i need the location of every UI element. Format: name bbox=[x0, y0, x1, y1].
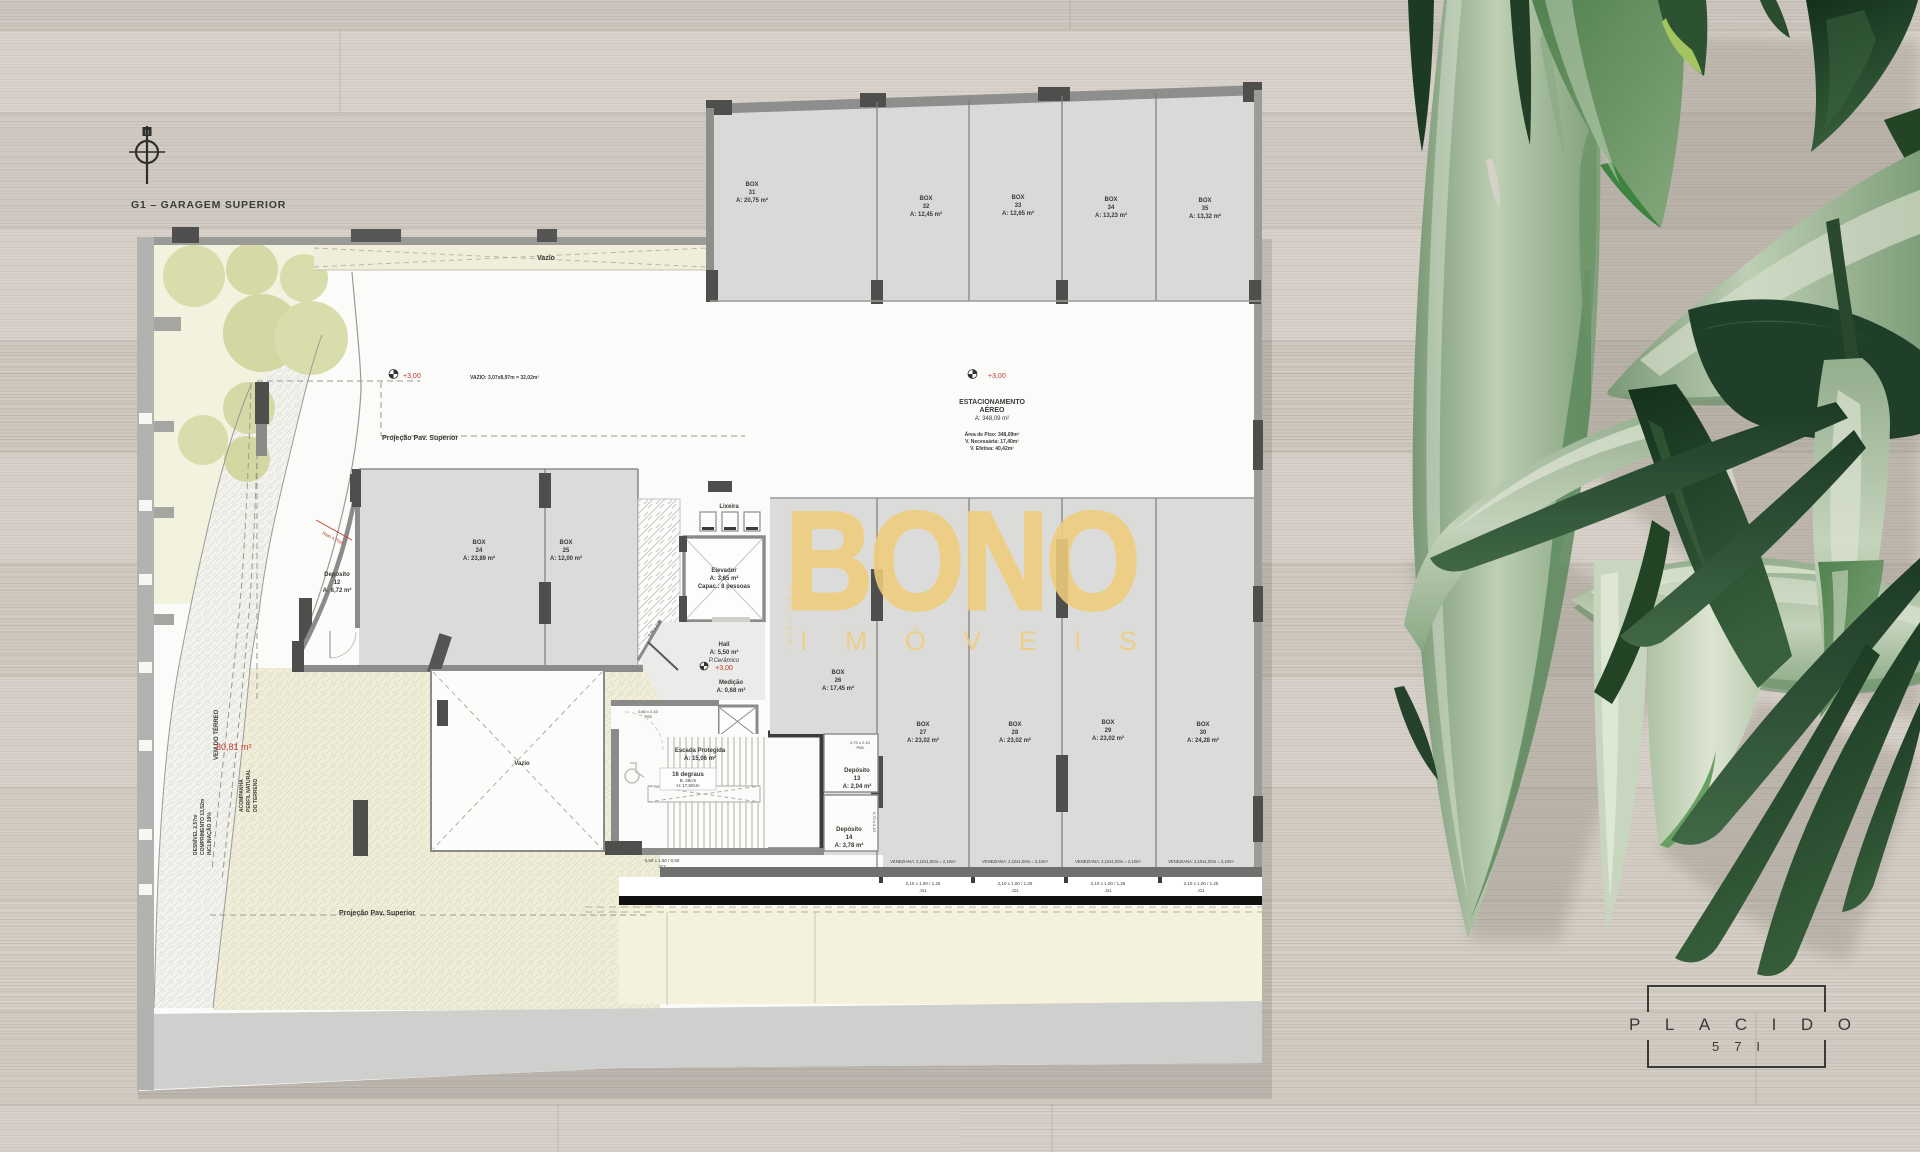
svg-text:A: 13,23 m²: A: 13,23 m² bbox=[1095, 212, 1127, 219]
svg-text:BOX: BOX bbox=[1198, 198, 1211, 204]
svg-text:VAZIO: 3,07x8,97m = 32,02m²: VAZIO: 3,07x8,97m = 32,02m² bbox=[470, 375, 539, 381]
svg-text:A: 0,68 m²: A: 0,68 m² bbox=[717, 687, 746, 694]
svg-text:BONO: BONO bbox=[785, 482, 1137, 639]
svg-text:+3,00: +3,00 bbox=[988, 373, 1006, 380]
svg-text:Depósito: Depósito bbox=[844, 768, 870, 774]
svg-text:2,10 x 1,00 / 1,25: 2,10 x 1,00 / 1,25 bbox=[906, 881, 941, 886]
svg-text:80,81 m²: 80,81 m² bbox=[216, 742, 252, 752]
svg-text:A: 12,65 m²: A: 12,65 m² bbox=[1002, 210, 1034, 217]
svg-text:DESNÍVEL 2,57m: DESNÍVEL 2,57m bbox=[191, 814, 199, 855]
svg-text:BOX: BOX bbox=[1104, 197, 1117, 203]
svg-text:+3,00: +3,00 bbox=[403, 373, 421, 380]
svg-text:28: 28 bbox=[1012, 730, 1019, 736]
svg-text:Elevador: Elevador bbox=[711, 568, 737, 574]
svg-text:DO TERRENO: DO TERRENO bbox=[253, 779, 259, 812]
svg-text:BOX: BOX bbox=[919, 196, 932, 202]
svg-text:29: 29 bbox=[1105, 728, 1112, 734]
svg-text:PERFIL NATURAL: PERFIL NATURAL bbox=[246, 769, 252, 812]
svg-text:Vazio: Vazio bbox=[514, 761, 530, 767]
svg-text:IMOBILIÁRIA: IMOBILIÁRIA bbox=[785, 582, 794, 650]
svg-text:BOX: BOX bbox=[745, 182, 758, 188]
svg-text:24: 24 bbox=[476, 548, 483, 554]
svg-text:34: 34 bbox=[1108, 205, 1115, 211]
svg-text:35: 35 bbox=[1202, 206, 1209, 212]
svg-text:J11: J11 bbox=[1105, 888, 1112, 893]
svg-text:BOX: BOX bbox=[831, 670, 844, 676]
svg-text:13: 13 bbox=[854, 776, 861, 782]
svg-text:A: 2,04 m²: A: 2,04 m² bbox=[843, 783, 872, 790]
svg-text:BOX: BOX bbox=[472, 540, 485, 546]
svg-text:INCLINAÇÃO 19%: INCLINAÇÃO 19% bbox=[206, 812, 213, 855]
svg-text:31: 31 bbox=[749, 190, 756, 196]
svg-text:A: 20,75 m²: A: 20,75 m² bbox=[736, 197, 768, 204]
svg-text:VENEZIANA: 2,10x1,00m = 2,10m²: VENEZIANA: 2,10x1,00m = 2,10m² bbox=[1168, 859, 1234, 864]
svg-text:J11: J11 bbox=[1012, 888, 1019, 893]
svg-text:A: 6,72 m²: A: 6,72 m² bbox=[323, 587, 352, 594]
svg-text:Capac.: 8 pessoas: Capac.: 8 pessoas bbox=[698, 584, 751, 590]
svg-text:V. Efetiva: 40,42m²: V. Efetiva: 40,42m² bbox=[970, 446, 1014, 452]
svg-text:A: 5,50 m²: A: 5,50 m² bbox=[710, 649, 739, 656]
svg-text:+3,00: +3,00 bbox=[715, 665, 733, 672]
svg-text:V. Necessária: 17,40m²: V. Necessária: 17,40m² bbox=[965, 439, 1019, 445]
svg-text:BOX: BOX bbox=[1101, 720, 1114, 726]
svg-text:33: 33 bbox=[1015, 203, 1022, 209]
svg-text:BOX: BOX bbox=[1008, 722, 1021, 728]
svg-text:Área de Piso: 348,09m²: Área de Piso: 348,09m² bbox=[965, 431, 1020, 438]
svg-text:0,70 x 2,10: 0,70 x 2,10 bbox=[872, 812, 877, 833]
svg-text:Medição: Medição bbox=[719, 680, 743, 686]
svg-text:BOX: BOX bbox=[1196, 722, 1209, 728]
svg-text:27: 27 bbox=[920, 730, 927, 736]
svg-text:BOX: BOX bbox=[1011, 195, 1024, 201]
svg-text:A: 13,32 m²: A: 13,32 m² bbox=[1189, 213, 1221, 220]
svg-text:Depósito: Depósito bbox=[836, 827, 862, 833]
svg-text:G1 – GARAGEM SUPERIOR: G1 – GARAGEM SUPERIOR bbox=[131, 199, 286, 211]
svg-text:ESTACIONAMENTO: ESTACIONAMENTO bbox=[959, 399, 1025, 406]
svg-text:P.Cerâmico: P.Cerâmico bbox=[709, 658, 740, 664]
svg-text:Escada Protegida: Escada Protegida bbox=[675, 748, 726, 754]
svg-text:J11: J11 bbox=[920, 888, 927, 893]
svg-text:Lixeira: Lixeira bbox=[719, 504, 739, 510]
svg-text:2,10 x 1,00 / 1,25: 2,10 x 1,00 / 1,25 bbox=[1184, 881, 1219, 886]
svg-text:Projeção Pav. Superior: Projeção Pav. Superior bbox=[339, 910, 415, 917]
svg-text:H: 17,50cm: H: 17,50cm bbox=[676, 783, 699, 788]
svg-text:25: 25 bbox=[563, 548, 570, 554]
svg-text:14: 14 bbox=[846, 835, 853, 841]
svg-text:Vazio: Vazio bbox=[537, 255, 555, 262]
svg-text:VEM DO TÉRREO: VEM DO TÉRREO bbox=[212, 709, 220, 760]
svg-text:A: 12,00 m²: A: 12,00 m² bbox=[550, 555, 582, 562]
svg-text:Projeção Pav. Superior: Projeção Pav. Superior bbox=[382, 435, 458, 442]
svg-text:2,10 x 1,00 / 1,25: 2,10 x 1,00 / 1,25 bbox=[998, 881, 1033, 886]
svg-text:Depósito: Depósito bbox=[324, 572, 350, 578]
svg-text:A: 24,28 m²: A: 24,28 m² bbox=[1187, 737, 1219, 744]
svg-text:VENEZIANA: 2,10x1,00m = 2,10m²: VENEZIANA: 2,10x1,00m = 2,10m² bbox=[890, 859, 956, 864]
svg-text:A: 23,02 m²: A: 23,02 m² bbox=[999, 737, 1031, 744]
svg-text:P06: P06 bbox=[856, 745, 864, 750]
svg-text:32: 32 bbox=[923, 204, 930, 210]
svg-text:A: 348,09 m²: A: 348,09 m² bbox=[975, 416, 1009, 422]
svg-text:AÉREO: AÉREO bbox=[980, 405, 1005, 414]
svg-text:12: 12 bbox=[334, 580, 341, 586]
svg-text:VENEZIANA: 2,10x1,00m = 2,10m²: VENEZIANA: 2,10x1,00m = 2,10m² bbox=[982, 859, 1048, 864]
svg-text:A: 23,89 m²: A: 23,89 m² bbox=[463, 555, 495, 562]
svg-text:COMPRIMENTO 13,52m: COMPRIMENTO 13,52m bbox=[200, 798, 206, 855]
svg-text:J11: J11 bbox=[1198, 888, 1205, 893]
svg-text:A: 17,45 m²: A: 17,45 m² bbox=[822, 685, 854, 692]
svg-text:A: 15,06 m²: A: 15,06 m² bbox=[684, 755, 716, 762]
svg-text:ACOMPANHA: ACOMPANHA bbox=[239, 779, 245, 812]
svg-text:A: 3,65 m²: A: 3,65 m² bbox=[710, 575, 739, 582]
svg-text:Hall: Hall bbox=[718, 642, 729, 648]
svg-text:A: 23,02 m²: A: 23,02 m² bbox=[1092, 735, 1124, 742]
svg-text:30: 30 bbox=[1200, 730, 1207, 736]
svg-text:VENEZIANA: 2,10x1,00m = 2,10m²: VENEZIANA: 2,10x1,00m = 2,10m² bbox=[1075, 859, 1141, 864]
svg-text:BOX: BOX bbox=[916, 722, 929, 728]
svg-text:26: 26 bbox=[835, 678, 842, 684]
svg-text:A: 12,45 m²: A: 12,45 m² bbox=[910, 211, 942, 218]
svg-text:0,60 x 1,50 / 0,60: 0,60 x 1,50 / 0,60 bbox=[645, 858, 680, 863]
svg-text:2,10 x 1,00 / 1,25: 2,10 x 1,00 / 1,25 bbox=[1091, 881, 1126, 886]
svg-text:BOX: BOX bbox=[559, 540, 572, 546]
svg-text:A: 3,78 m²: A: 3,78 m² bbox=[835, 842, 864, 849]
svg-text:A: 23,02 m²: A: 23,02 m² bbox=[907, 737, 939, 744]
